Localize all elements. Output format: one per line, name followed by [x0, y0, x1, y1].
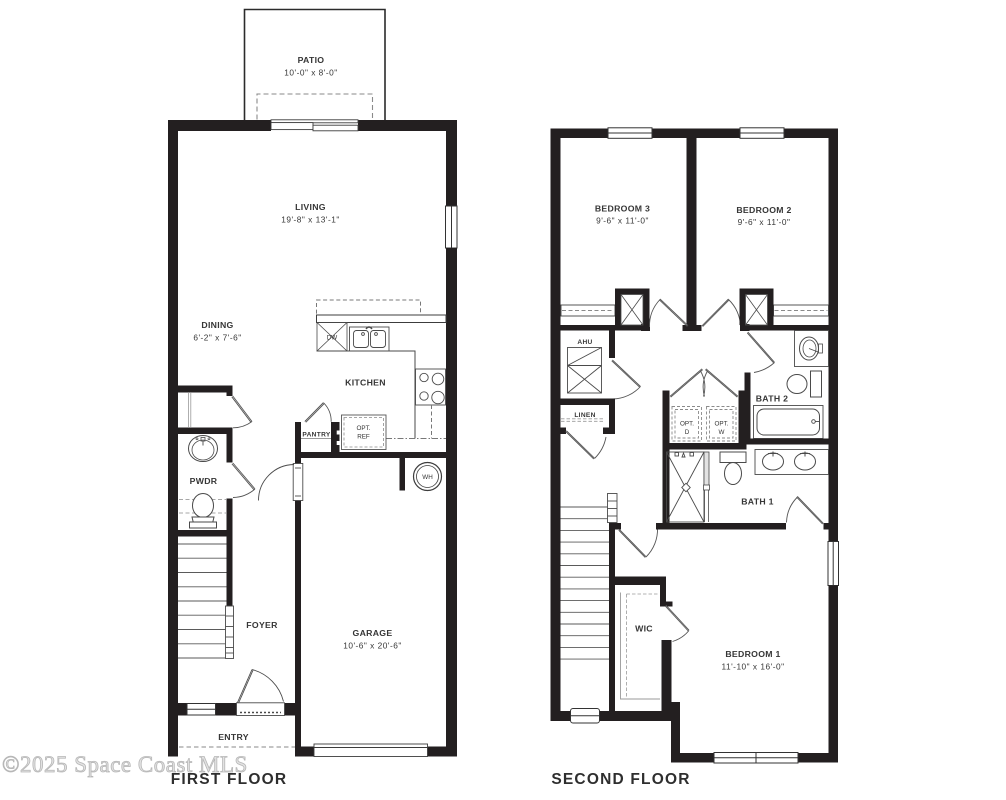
svg-text:WH: WH [422, 474, 433, 481]
svg-text:PWDR: PWDR [190, 476, 218, 486]
svg-text:D: D [685, 429, 690, 436]
svg-text:6'-2" x 7'-6": 6'-2" x 7'-6" [193, 333, 241, 343]
svg-text:9'-6" x 11'-0": 9'-6" x 11'-0" [596, 216, 649, 226]
svg-text:10'-0" x 8'-0": 10'-0" x 8'-0" [284, 68, 337, 78]
svg-text:AHU: AHU [577, 339, 592, 346]
svg-text:10'-6" x 20'-6": 10'-6" x 20'-6" [343, 641, 402, 651]
svg-text:SECOND FLOOR: SECOND FLOOR [551, 771, 690, 788]
svg-text:BEDROOM 2: BEDROOM 2 [736, 205, 791, 215]
svg-text:FOYER: FOYER [246, 620, 278, 630]
svg-text:ENTRY: ENTRY [218, 732, 249, 742]
svg-text:OPT.: OPT. [680, 421, 694, 428]
svg-text:WIC: WIC [635, 624, 653, 634]
svg-text:9'-6" x 11'-0": 9'-6" x 11'-0" [738, 217, 791, 227]
svg-text:KITCHEN: KITCHEN [345, 378, 386, 388]
svg-text:19'-8" x 13'-1": 19'-8" x 13'-1" [281, 215, 340, 225]
svg-text:BATH 1: BATH 1 [741, 497, 774, 507]
svg-text:BEDROOM 1: BEDROOM 1 [725, 649, 780, 659]
svg-text:OPT.: OPT. [357, 425, 371, 432]
svg-text:11'-10" x 16'-0": 11'-10" x 16'-0" [721, 662, 784, 672]
svg-text:PANTRY: PANTRY [302, 432, 330, 439]
svg-text:BATH 2: BATH 2 [756, 394, 789, 404]
svg-text:FIRST FLOOR: FIRST FLOOR [171, 771, 288, 788]
svg-text:REF: REF [357, 434, 370, 441]
svg-text:GARAGE: GARAGE [353, 628, 393, 638]
svg-text:W: W [719, 429, 725, 436]
svg-text:LINEN: LINEN [574, 412, 595, 419]
svg-text:PATIO: PATIO [298, 55, 325, 65]
svg-text:OPT.: OPT. [715, 421, 729, 428]
svg-text:DW: DW [327, 335, 338, 342]
svg-text:LIVING: LIVING [295, 202, 326, 212]
svg-text:DINING: DINING [201, 320, 233, 330]
svg-text:BEDROOM 3: BEDROOM 3 [595, 204, 650, 214]
